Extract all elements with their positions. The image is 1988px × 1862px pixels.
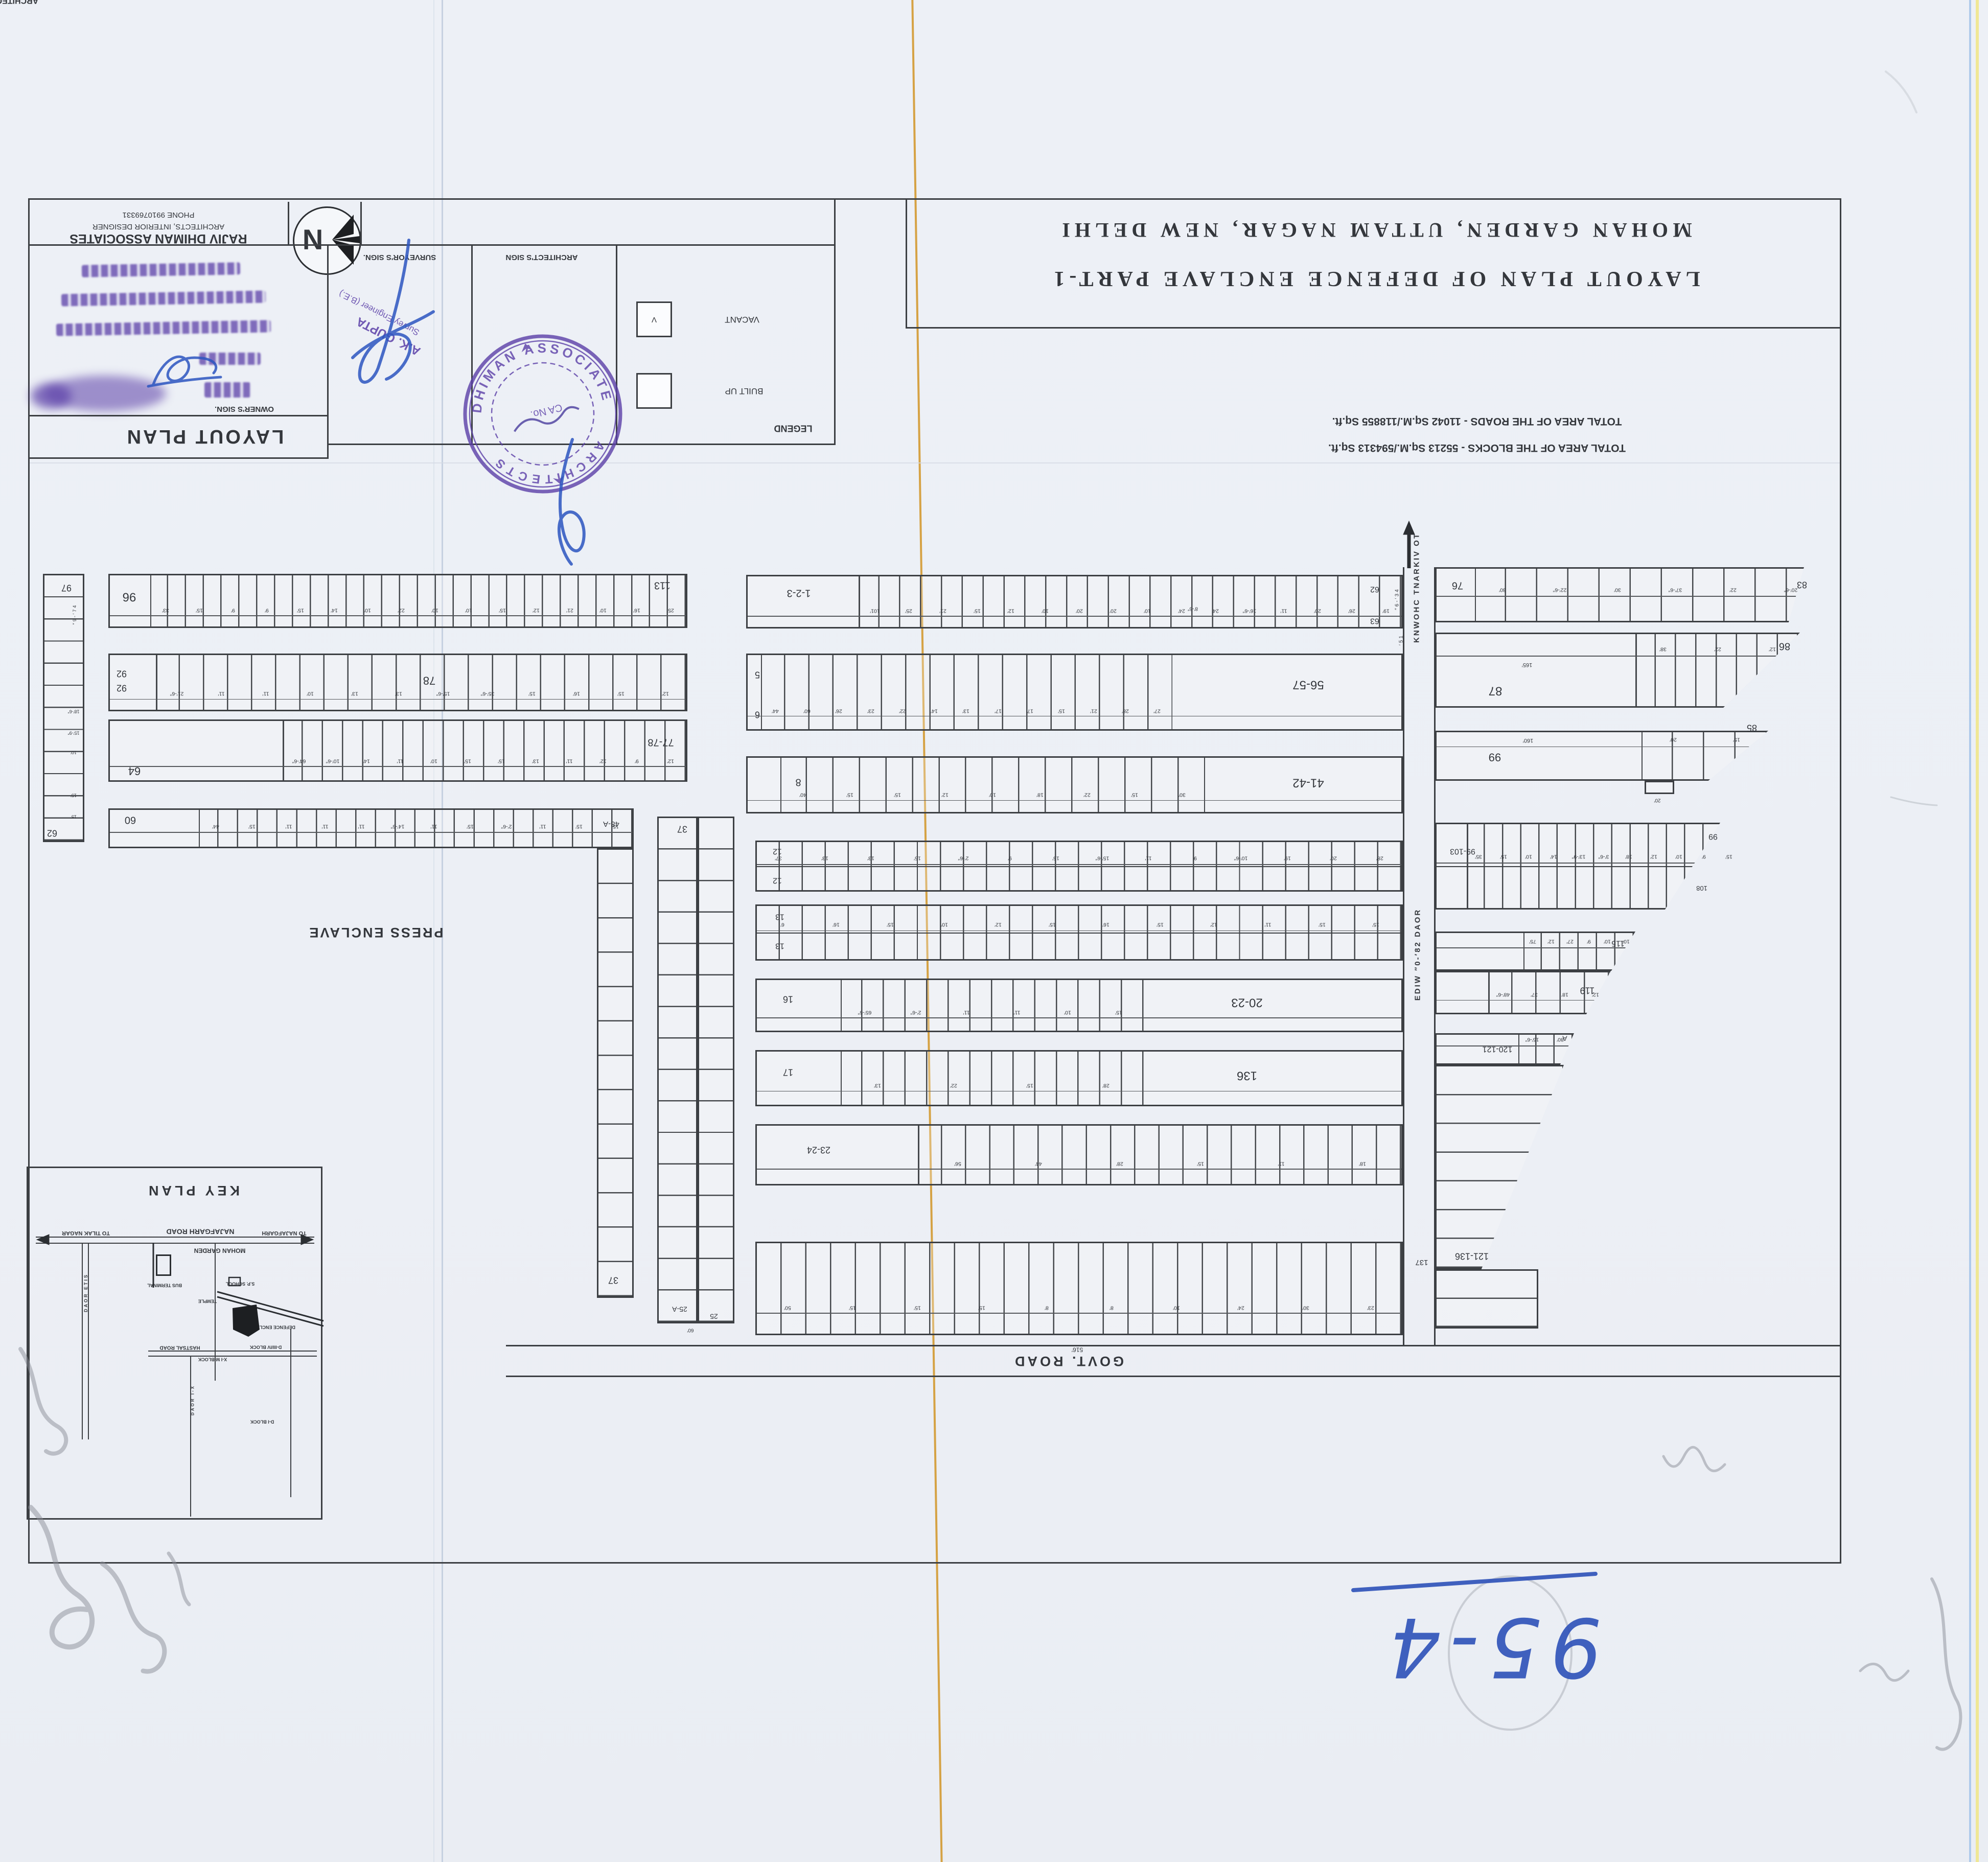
pencil-scribbles [20,72,1960,1750]
scanned-layout-plan-page: MOHAN GARDEN, UTTAM NAGAR, NEW DELHI LAY… [0,0,1988,1862]
key-plan-roads [37,1235,323,1337]
signatures [148,240,584,564]
north-road-arrow [1403,521,1415,568]
svg-text:ARCHITECTS: ARCHITECTS [488,427,614,499]
ink-overlay: DHIMAN ASSOCIATES ARCHITECTS CA No. [0,0,1988,1862]
surveyor-signature [353,240,433,382]
defence-enclave-site [233,1305,260,1337]
architect-signature [559,439,584,564]
handwriting-underline [1353,1574,1596,1590]
svg-text:DHIMAN ASSOCIATES: DHIMAN ASSOCIATES [0,0,615,551]
owner-signature [148,357,221,386]
architect-round-stamp: DHIMAN ASSOCIATES ARCHITECTS CA No. [0,0,637,622]
handwritten-number: 95-4 [1380,1599,1602,1695]
